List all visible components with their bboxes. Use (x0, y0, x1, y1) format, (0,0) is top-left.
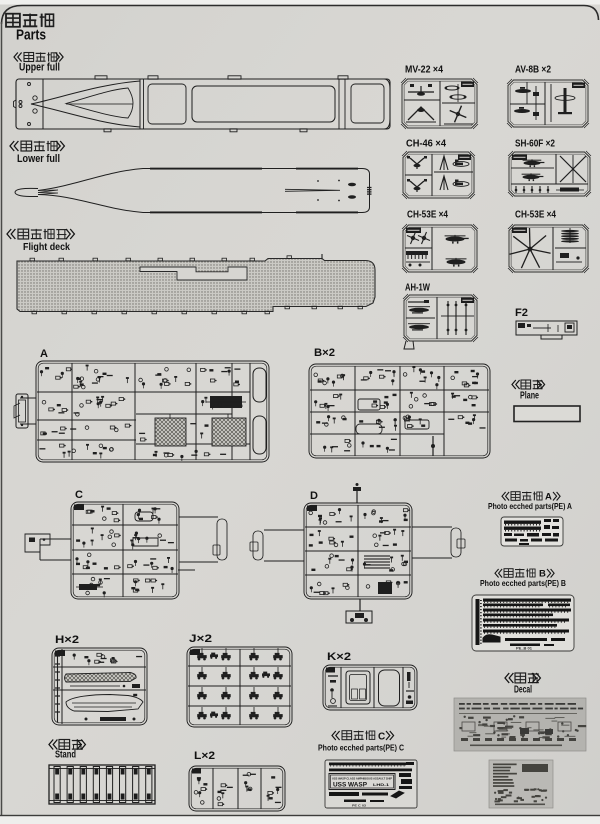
svg-text:AH-1W: AH-1W (405, 282, 430, 294)
svg-text:LHD-1: LHD-1 (373, 782, 390, 787)
svg-text:B: B (539, 569, 546, 580)
svg-text:K×2: K×2 (327, 651, 351, 663)
svg-text:Photo ecched parts(PE) C: Photo ecched parts(PE) C (318, 743, 404, 753)
svg-text:CH-53E ×4: CH-53E ×4 (407, 209, 448, 221)
svg-text:C: C (75, 489, 83, 501)
svg-text:USS WASP: USS WASP (333, 783, 367, 789)
svg-text:Parts: Parts (16, 28, 46, 44)
svg-text:J×2: J×2 (189, 633, 212, 645)
svg-text:Flight deck: Flight deck (23, 241, 70, 253)
svg-text:Decal: Decal (514, 684, 532, 696)
svg-text:B×2: B×2 (314, 347, 335, 359)
svg-text:USS WASP CLASS AMPHIBIOUS ASSA: USS WASP CLASS AMPHIBIOUS ASSAULT SHIP (332, 777, 392, 781)
svg-text:Lower full: Lower full (17, 153, 60, 165)
svg-text:CH-53E ×4: CH-53E ×4 (515, 209, 556, 221)
svg-text:A: A (40, 348, 48, 360)
svg-text:SH-60F ×2: SH-60F ×2 (515, 138, 555, 150)
svg-text:C: C (378, 732, 385, 743)
svg-text:Upper full: Upper full (19, 62, 60, 74)
svg-text:Photo ecched parts(PE) B: Photo ecched parts(PE) B (480, 579, 566, 588)
svg-text:Stand: Stand (55, 749, 76, 761)
svg-text:A: A (545, 492, 552, 503)
svg-text:F2: F2 (515, 307, 528, 319)
svg-text:H×2: H×2 (55, 634, 79, 646)
svg-text:Plane: Plane (520, 390, 539, 402)
svg-text:AV-8B ×2: AV-8B ×2 (515, 64, 551, 76)
svg-text:CH-46 ×4: CH-46 ×4 (406, 138, 446, 150)
svg-text:PE..B 01: PE..B 01 (516, 647, 532, 651)
svg-text:D: D (310, 490, 318, 502)
svg-text:Photo ecched parts(PE) A: Photo ecched parts(PE) A (488, 502, 572, 511)
svg-text:L×2: L×2 (194, 750, 215, 762)
svg-text:MV-22 ×4: MV-22 ×4 (405, 64, 443, 76)
svg-text:PE C 03: PE C 03 (352, 804, 367, 808)
